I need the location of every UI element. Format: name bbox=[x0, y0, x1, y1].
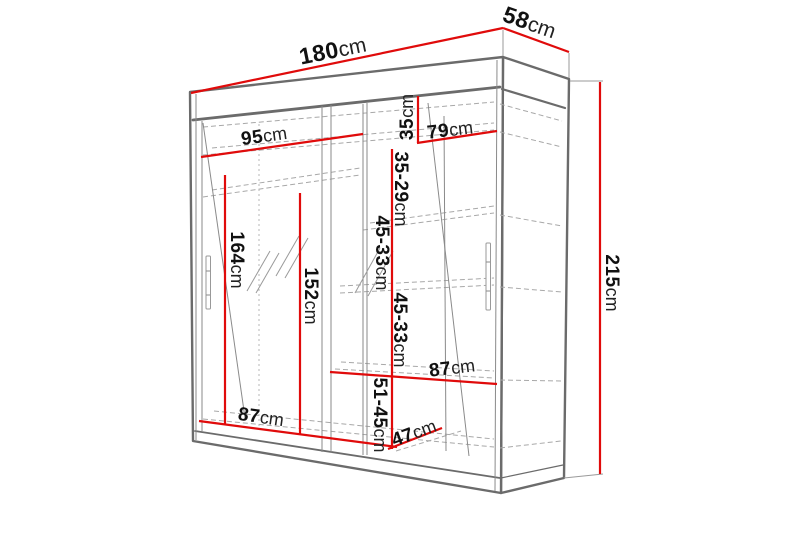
door-handle-right bbox=[486, 243, 491, 310]
extension-line bbox=[564, 474, 603, 478]
wardrobe-dimension-diagram: 180cm 58cm 215cm 95cm 79cm 35cm 35-29cm … bbox=[0, 0, 800, 533]
dim-label-height: 215cm bbox=[601, 254, 622, 311]
dim-label-second-gap: 35-29cm bbox=[390, 151, 411, 226]
dim-label-bottom-gap: 51-45cm bbox=[369, 377, 390, 452]
dim-label-lower-gap: 45-33cm bbox=[389, 292, 410, 367]
wardrobe-side-face bbox=[501, 57, 569, 493]
dim-label-middle-gap: 45-33cm bbox=[371, 215, 392, 290]
handle-bar bbox=[206, 256, 211, 309]
diagram-svg: 180cm 58cm 215cm 95cm 79cm 35cm 35-29cm … bbox=[0, 0, 800, 533]
dim-label-top-gap: 35cm bbox=[397, 94, 418, 140]
handle-bar bbox=[486, 243, 491, 310]
door-handle-left bbox=[206, 256, 211, 309]
dim-label-hanging-height: 152cm bbox=[300, 267, 321, 324]
dim-label-mirror-height: 164cm bbox=[226, 231, 247, 288]
